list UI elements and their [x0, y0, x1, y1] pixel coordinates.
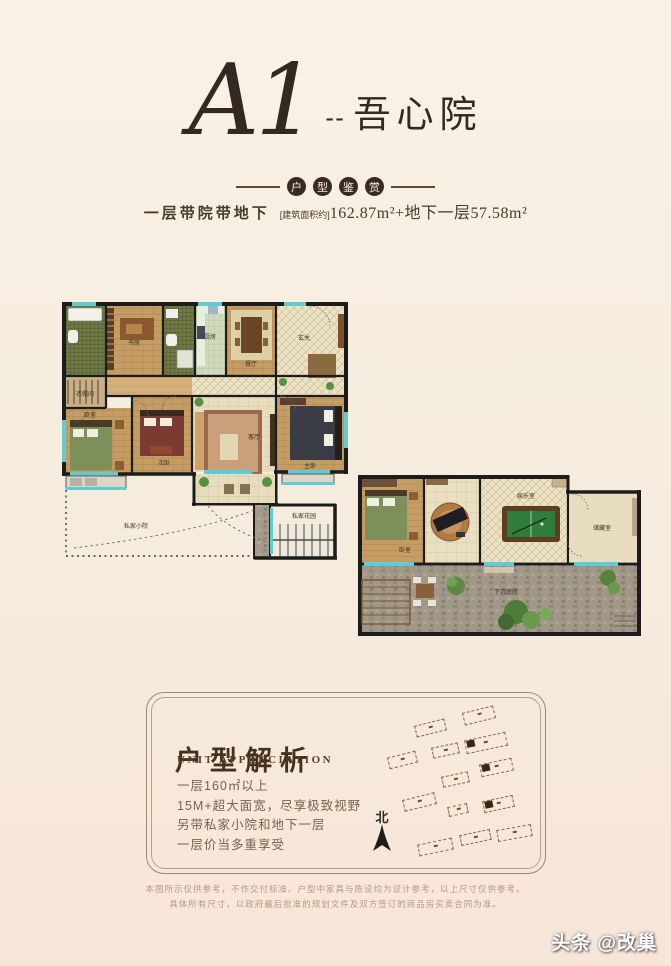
siteplan-building	[496, 824, 533, 842]
svg-text:玄关: 玄关	[298, 334, 310, 342]
badge-line-left	[236, 186, 280, 188]
siteplan-building	[482, 795, 515, 813]
siteplan-building	[441, 771, 470, 787]
siteplan-building	[464, 732, 508, 754]
svg-text:客厅: 客厅	[248, 433, 260, 441]
svg-text:次卧: 次卧	[158, 459, 170, 467]
unit-name: 吾心院	[354, 84, 483, 138]
badge-char: 型	[313, 177, 332, 196]
badge-char: 鉴	[339, 177, 358, 196]
area-bracket: [建筑面积约]	[280, 210, 330, 220]
disclaimer: 本图所示仅供参考，不作交付标准。户型中家具与陈设均为设计参考，以上尺寸仅供参考。…	[0, 882, 671, 912]
subtitle-label: 一层带院带地下	[144, 205, 270, 222]
badge-char: 赏	[365, 177, 384, 196]
siteplan-canvas	[147, 693, 545, 873]
siteplan-building	[414, 718, 447, 737]
svg-text:私家小院: 私家小院	[124, 522, 148, 530]
siteplan-building	[447, 803, 469, 817]
siteplan-building	[459, 829, 492, 846]
siteplan-building	[402, 792, 437, 812]
compass: 北	[367, 811, 397, 857]
disclaimer-line: 本图所示仅供参考，不作交付标准。户型中家具与陈设均为设计参考，以上尺寸仅供参考。	[0, 882, 671, 897]
svg-text:卧室: 卧室	[399, 546, 411, 554]
badge-char: 户	[287, 177, 306, 196]
svg-text:厨房: 厨房	[204, 333, 216, 341]
stairs-to-basement	[254, 504, 337, 558]
siteplan-building	[462, 705, 496, 725]
windows-basement	[364, 562, 618, 566]
area-extra: +地下一层57.58m²	[395, 205, 527, 222]
siteplan-building	[387, 751, 418, 770]
svg-text:储藏室: 储藏室	[593, 524, 611, 532]
floorplan-first-floor: 书房 厨房 餐厅 玄关 衣帽间 卧室 次卧 客厅 主卧 私家小院 私家花园	[58, 296, 350, 562]
courtyard-step	[484, 567, 514, 573]
badge-row: 户 型 鉴 赏	[0, 177, 671, 196]
svg-text:娱乐室: 娱乐室	[517, 492, 535, 500]
compass-north-label: 北	[367, 811, 397, 824]
area-value: 162.87m²	[330, 205, 395, 222]
unit-analysis-panel: 户型解析 UNIT APPRECIATION 一层160㎡以上 15M+超大面宽…	[146, 692, 546, 874]
svg-text:卧室: 卧室	[84, 411, 96, 419]
compass-needle-icon	[372, 824, 392, 852]
unit-code: A1	[188, 56, 313, 146]
svg-text:下沉庭院: 下沉庭院	[494, 588, 518, 596]
badge-line-right	[391, 186, 435, 188]
siteplan-building	[431, 742, 460, 758]
floorplan-basement: 卧室 娱乐室 储藏室 下沉庭院	[356, 472, 642, 642]
disclaimer-line: 具体所有尺寸，以政府最后批准的规划文件及双方签订的商品房买卖合同为准。	[0, 897, 671, 912]
subtitle: 一层带院带地下[建筑面积约]162.87m²+地下一层57.58m²	[0, 199, 671, 223]
svg-text:餐厅: 餐厅	[245, 360, 257, 368]
svg-text:衣帽间: 衣帽间	[76, 390, 94, 398]
svg-text:私家花园: 私家花园	[292, 512, 316, 520]
watermark: 头条 @改巢	[551, 928, 657, 955]
siteplan-building	[417, 837, 454, 856]
balconies	[66, 474, 334, 503]
svg-text:主卧: 主卧	[304, 462, 316, 470]
siteplan-building	[479, 758, 514, 778]
title-dashes: --	[326, 105, 346, 132]
page-title: A1 -- 吾心院	[0, 56, 671, 146]
svg-text:书房: 书房	[128, 339, 140, 347]
